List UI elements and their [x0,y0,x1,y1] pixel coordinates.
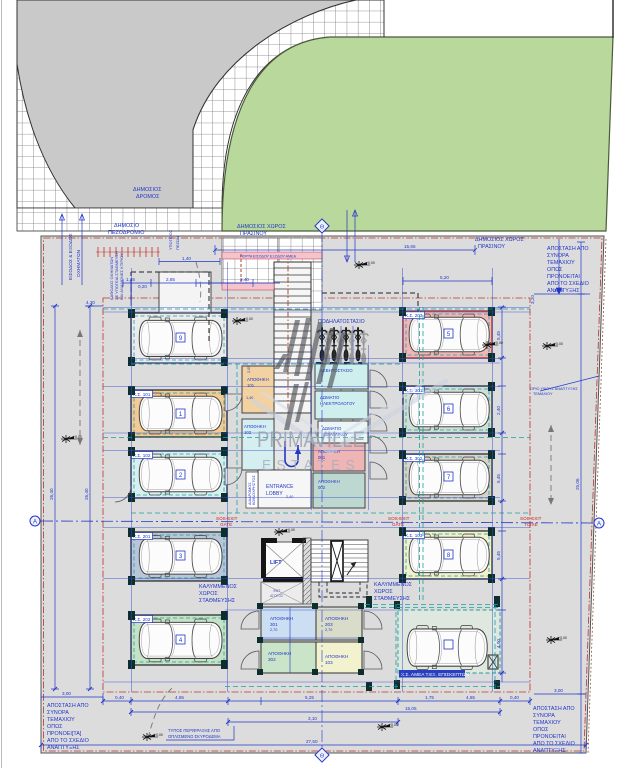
svg-text:5,45: 5,45 [496,474,501,483]
svg-text:ΚΑΛΥΜΜΕΝΟΣ: ΚΑΛΥΜΜΕΝΟΣ [374,582,413,588]
svg-text:ΑΝΑΠΤΥΞΗΣ: ΑΝΑΠΤΥΞΗΣ [533,748,566,754]
svg-text:ΧΩΡΟΣ: ΧΩΡΟΣ [374,589,393,595]
svg-text:ΕΙΣΟΔΟΣ & ΕΞΟΔΟΣ: ΕΙΣΟΔΟΣ & ΕΞΟΔΟΣ [68,233,74,280]
svg-text:ΣΥΝΟΡΑ: ΣΥΝΟΡΑ [547,253,569,259]
svg-text:ΑΠΟ ΤΟ ΣΧΕΔΙΟ: ΑΠΟ ΤΟ ΣΧΕΔΙΟ [547,281,589,287]
svg-text:GATE: GATE [220,522,232,527]
svg-text:ΣΥΝΟΡΑ: ΣΥΝΟΡΑ [533,713,555,719]
svg-text:ΑΠΟΘΗΚΗ: ΑΠΟΘΗΚΗ [318,479,340,484]
svg-text:ΠΕΖΩΝ: ΠΕΖΩΝ [175,236,180,250]
svg-text:LIFT: LIFT [270,560,282,566]
svg-text:0,40: 0,40 [510,695,519,700]
svg-text:ΟΠΩΣ: ΟΠΩΣ [47,724,63,730]
svg-text:103: 103 [325,660,333,665]
svg-text:ΥΠΟΓΕΙΟΣ: ΥΠΟΓΕΙΟΣ [168,229,173,250]
svg-text:ΧΩΡΟΣ: ΧΩΡΟΣ [199,591,218,597]
svg-text:26,40: 26,40 [84,488,89,500]
svg-text:102: 102 [244,430,252,435]
svg-text:ΠΡΟΝΟΕΙΤΑΙ: ΠΡΟΝΟΕΙΤΑΙ [547,274,580,280]
svg-text:ΠΡΟΝΟΕΙΤΑΙ: ΠΡΟΝΟΕΙΤΑΙ [533,734,566,740]
svg-text:1,40: 1,40 [182,256,191,261]
svg-text:ΑΝΑΠΤΥΞΗΣ: ΑΝΑΠΤΥΞΗΣ [547,288,580,294]
svg-text:Χ.Σ. ΑΜΕΑ Τ.ΕΞ. ΕΠΙΣΚΕΠΤΩΝ: Χ.Σ. ΑΜΕΑ Τ.ΕΞ. ΕΠΙΣΚΕΠΤΩΝ [401,672,469,678]
svg-text:Θ: Θ [320,754,325,760]
svg-text:ΤΕΜΑΧΙΟΥ: ΤΕΜΑΧΙΟΥ [547,260,575,266]
svg-text:1,75: 1,75 [425,695,434,700]
svg-text:+0,00: +0,00 [244,317,253,321]
svg-text:ΠΡΑΣΙΝΟΥ: ΠΡΑΣΙΝΟΥ [478,244,505,250]
svg-text:ΑΠΟΣΤΑΣΗ ΑΠΟ: ΑΠΟΣΤΑΣΗ ΑΠΟ [533,706,575,712]
svg-text:+0,00: +0,00 [73,435,82,439]
svg-text:A: A [33,520,37,526]
svg-text:5,20: 5,20 [440,275,449,280]
svg-text:15,65: 15,65 [404,244,416,249]
svg-text:25,06: 25,06 [575,478,580,490]
svg-text:ΤΥΠΟΣ ΠΕΡΙΦΡΑΞΗΣ ΑΠΟ: ΤΥΠΟΣ ΠΕΡΙΦΡΑΞΗΣ ΑΠΟ [168,728,221,733]
svg-text:ΑΝΑΠΤΥΞΗΣ: ΑΝΑΠΤΥΞΗΣ [47,745,80,751]
svg-text:ΟΠΛΙΣΜΕΝΟ ΣΚΥΡΟΔΕΜΑ: ΟΠΛΙΣΜΕΝΟ ΣΚΥΡΟΔΕΜΑ [168,734,221,739]
svg-text:4,65: 4,65 [175,695,184,700]
svg-text:+0,00: +0,00 [154,733,163,737]
svg-text:5,45: 5,45 [496,331,501,340]
svg-text:ΠΡΑΣΙΝΟΥ: ΠΡΑΣΙΝΟΥ [240,231,267,237]
svg-text:ΑΠΟ ΤΟ ΣΧΕΔΙΟ: ΑΠΟ ΤΟ ΣΧΕΔΙΟ [533,741,575,747]
svg-text:+0,00: +0,00 [286,528,295,532]
svg-text:ΑΓΩΓΟΣ: ΑΓΩΓΟΣ [270,594,283,598]
svg-text:2,40: 2,40 [496,406,501,415]
svg-text:SOS-EXIT: SOS-EXIT [520,516,542,521]
svg-text:ΠΡΟΝΟΕΙ[ΤΑ]: ΠΡΟΝΟΕΙ[ΤΑ] [47,731,82,737]
svg-text:1,35: 1,35 [126,277,135,282]
svg-text:2,40: 2,40 [286,495,293,499]
svg-text:ΣΤΑΘΜΕΥΣΗΣ: ΣΤΑΘΜΕΥΣΗΣ [199,598,236,604]
svg-text:+0,00: +0,00 [494,341,503,345]
svg-text:15,05: 15,05 [405,706,417,711]
svg-text:3,00: 3,00 [554,288,563,293]
svg-text:0,20: 0,20 [138,284,147,289]
svg-text:302: 302 [268,657,276,662]
svg-text:ΑΠΟΣΤΑΣΗ ΑΠΟ: ΑΠΟΣΤΑΣΗ ΑΠΟ [47,703,89,709]
svg-text:26,40: 26,40 [49,488,54,500]
svg-text:3,00: 3,00 [62,691,71,696]
svg-text:ΤΕΜΑΧΙΟΥ: ΤΕΜΑΧΙΟΥ [47,717,75,723]
svg-text:ESTATES: ESTATES [262,457,360,474]
svg-text:LOBBY: LOBBY [266,491,283,497]
svg-text:A: A [597,522,601,528]
svg-text:Χ.Σ. 103: Χ.Σ. 103 [405,533,423,538]
svg-text:2,70: 2,70 [270,628,277,632]
svg-text:ΤΕΜΑΧΙΟΥ: ΤΕΜΑΧΙΟΥ [533,720,561,726]
svg-text:ΔΗΜΟΣΙΟ: ΔΗΜΟΣΙΟ [114,223,139,229]
svg-text:301: 301 [270,622,278,627]
svg-text:ΑΠΟΘΗΚΗ: ΑΠΟΘΗΚΗ [325,654,348,659]
svg-text:SOS-EXIT: SOS-EXIT [388,516,410,521]
svg-text:ΟΠΩΣ: ΟΠΩΣ [547,267,563,273]
svg-text:+0,00: +0,00 [554,342,563,346]
svg-text:ΤΕΜΑΧΙΟΥ: ΤΕΜΑΧΙΟΥ [533,392,553,396]
svg-text:ΔΗΜΟΣΙΟΣ ΧΩΡΟΣ: ΔΗΜΟΣΙΟΣ ΧΩΡΟΣ [475,237,524,243]
svg-text:ΠΟΡΤΑ ΕΙΣΟΔΟΥ ΕΞΟΔΟΥ ΑΜΕΑ: ΠΟΡΤΑ ΕΙΣΟΔΟΥ ΕΞΟΔΟΥ ΑΜΕΑ [240,255,296,259]
svg-text:ΔΙΑΔΡΟΜΟΣ: ΔΙΑΔΡΟΜΟΣ [248,482,252,505]
svg-text:203: 203 [325,622,333,627]
svg-text:ΔΡΟΜΟΣ: ΔΡΟΜΟΣ [136,194,160,200]
svg-text:4,30: 4,30 [86,300,95,305]
svg-text:Χ.Σ. 102: Χ.Σ. 102 [133,453,151,458]
svg-text:Χ.Σ. 203: Χ.Σ. 203 [405,313,423,318]
svg-text:+0,00: +0,00 [366,261,375,265]
svg-text:27,50: 27,50 [306,739,318,744]
svg-text:2,65: 2,65 [166,277,175,282]
svg-text:ΚΑΛΥΜΜΕΝΟΣ: ΚΑΛΥΜΜΕΝΟΣ [199,584,238,590]
svg-text:+0,00: +0,00 [389,723,398,727]
svg-text:ΑΠΟ ΤΟ ΣΧΕΔΙΟ: ΑΠΟ ΤΟ ΣΧΕΔΙΟ [47,738,89,744]
svg-text:ΦΩΤ: ΦΩΤ [273,589,280,593]
svg-text:Χ.Σ. 302: Χ.Σ. 302 [405,456,423,461]
svg-text:ΠΟΔΗΛΑΤΟΣΤΑΣΙΟ: ΠΟΔΗΛΑΤΟΣΤΑΣΙΟ [318,319,365,325]
svg-text:ΚΑΙ ΑΝΑΜΟΝΕΣ ΚΤΙΡΙΟΥ: ΚΑΙ ΑΝΑΜΟΝΕΣ ΚΤΙΡΙΟΥ [119,253,124,300]
svg-text:ΟΡΙΟ ΥΨΟΥΣ ΑΝΑΠΤΥΞΗΣ: ΟΡΙΟ ΥΨΟΥΣ ΑΝΑΠΤΥΞΗΣ [530,387,578,391]
svg-text:ΠΕΖΟΔΡΟΜΙΟ: ΠΕΖΟΔΡΟΜΙΟ [108,230,144,236]
svg-text:ΚΟΙΝΟΧΡΗΣΤΟΣ: ΚΟΙΝΟΧΡΗΣΤΟΣ [252,475,256,505]
svg-text:Χ.Σ. 101: Χ.Σ. 101 [133,392,151,397]
svg-text:3,20: 3,20 [530,295,535,304]
svg-text:101: 101 [247,383,255,388]
svg-text:1,40: 1,40 [246,396,253,400]
svg-text:ΟΧΗΜΑΤΩΝ: ΟΧΗΜΑΤΩΝ [76,249,82,277]
svg-text:ΑΠΟΘΗΚΗ: ΑΠΟΘΗΚΗ [247,377,269,382]
svg-text:3,00: 3,00 [554,688,563,693]
svg-text:ENTRANCE: ENTRANCE [266,484,294,490]
svg-text:Χ.Σ. 201: Χ.Σ. 201 [133,534,151,539]
svg-text:5,45: 5,45 [496,551,501,560]
svg-text:5,25: 5,25 [305,695,314,700]
svg-text:4,65: 4,65 [466,695,475,700]
svg-text:2,70: 2,70 [325,628,332,632]
svg-text:3,10: 3,10 [308,716,317,721]
svg-text:4,00: 4,00 [496,639,501,648]
svg-text:ΔΩΜΑΤΙΟ: ΔΩΜΑΤΙΟ [320,395,340,400]
svg-text:0,40: 0,40 [115,695,124,700]
svg-text:ΑΠΟΣΤΑΣΗ ΑΠΟ: ΑΠΟΣΤΑΣΗ ΑΠΟ [547,246,589,252]
svg-text:ΑΠΟΘΗΚΗ: ΑΠΟΘΗΚΗ [325,616,348,621]
svg-text:+0,00: +0,00 [558,636,567,640]
svg-text:ΑΠΟΘΗΚΗ: ΑΠΟΘΗΚΗ [268,651,291,656]
svg-text:3,40: 3,40 [240,277,249,282]
svg-text:ΣΤΑΘΜΕΥΣΗΣ: ΣΤΑΘΜΕΥΣΗΣ [374,596,411,602]
svg-text:ΔΗΜΟΣΙΟΣ: ΔΗΜΟΣΙΟΣ [133,187,162,193]
svg-text:SOS-EXIT: SOS-EXIT [216,516,238,521]
svg-text:ΗΛΕΚΤΡΟΛΟΓΟΥ: ΗΛΕΚΤΡΟΛΟΓΟΥ [320,401,355,406]
svg-text:Θ: Θ [320,225,325,231]
svg-text:Χ.Σ. 202: Χ.Σ. 202 [133,617,151,622]
svg-text:ΣΥΝΟΡΑ: ΣΥΝΟΡΑ [47,710,69,716]
svg-text:2,05: 2,05 [247,366,251,373]
svg-text:ΟΠΩΣ: ΟΠΩΣ [533,727,549,733]
svg-text:PRIMAVILLE: PRIMAVILLE [257,427,365,452]
svg-text:ΔΗΜΟΣΙΟΣ ΧΩΡΟΣ: ΔΗΜΟΣΙΟΣ ΧΩΡΟΣ [237,224,286,230]
